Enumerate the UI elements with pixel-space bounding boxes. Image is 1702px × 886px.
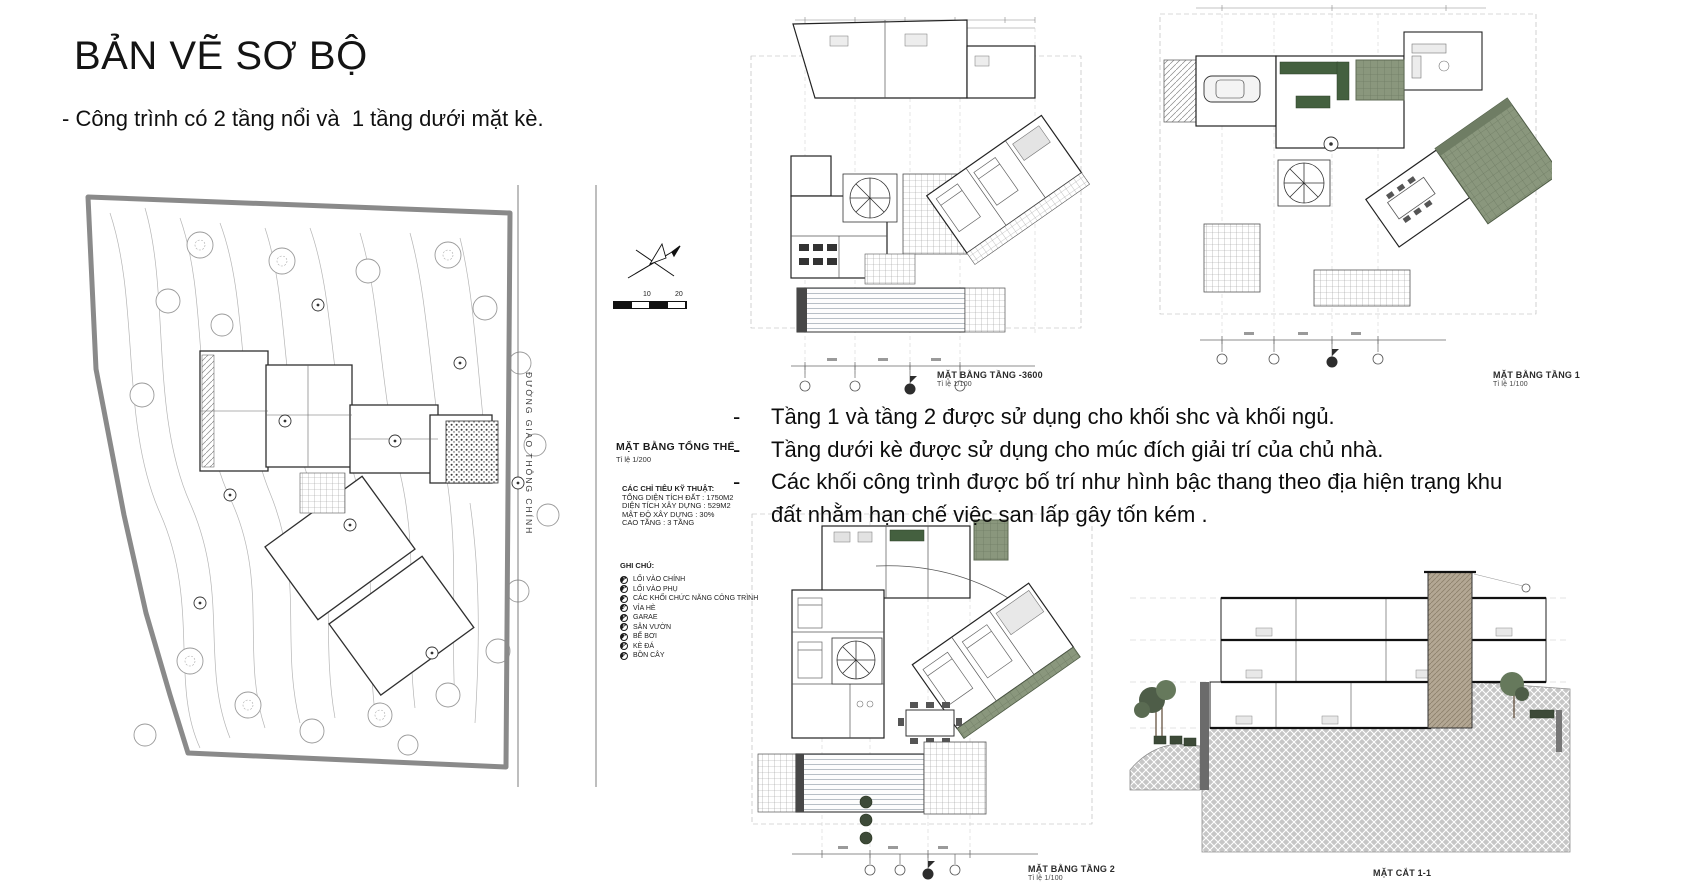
plan-title: MẶT BẰNG TẦNG 1: [1493, 370, 1580, 380]
note-item: - Tầng dưới kè được sử dụng cho múc đích…: [733, 434, 1533, 467]
floor2-plan-caption: MẶT BẰNG TẦNG 2 Tỉ lệ 1/100: [1028, 864, 1115, 884]
drawing-sheet: { "page": { "title": "BẢN VẼ SƠ BỘ", "su…: [0, 0, 1702, 886]
scale-bar: 10 20: [613, 291, 689, 313]
scale-bar-num-10: 10: [643, 291, 651, 298]
page-subtitle: - Công trình có 2 tầng nổi và 1 tầng dướ…: [62, 106, 544, 132]
floor1-plan-caption: MẶT BẰNG TẦNG 1 Tỉ lệ 1/100: [1493, 370, 1580, 390]
note-text: Tầng 1 và tầng 2 được sử dụng cho khối s…: [771, 401, 1533, 434]
page-title: BẢN VẼ SƠ BỘ: [74, 34, 368, 79]
marker-icon: 1: [620, 576, 628, 584]
marker-icon: 8: [620, 642, 628, 650]
legend-label: BỂ BƠI: [633, 633, 657, 640]
note-text: Các khối công trình được bố trí như hình…: [771, 466, 1533, 531]
marker-icon: 4: [620, 604, 628, 612]
site-plan-drawing: [50, 183, 602, 791]
north-arrow-icon: [622, 240, 686, 288]
site-plan-title: MẶT BẰNG TỔNG THỂ: [616, 441, 735, 453]
specs-heading: CÁC CHỈ TIÊU KỸ THUẬT:: [622, 485, 733, 493]
site-plan-scale: Tỉ lệ 1/200: [616, 455, 651, 464]
plan-title: MẶT BẰNG TẦNG 2: [1028, 864, 1115, 874]
basement-plan-drawing: [735, 6, 1107, 402]
note-bullet: -: [733, 466, 771, 531]
marker-icon: 5: [620, 614, 628, 622]
basement-plan-caption: MẶT BẰNG TẦNG -3600 Tỉ lệ 1/100: [937, 370, 1043, 390]
legend-label: SÂN VƯỜN: [633, 624, 671, 631]
note-bullet: -: [733, 401, 771, 434]
spec-item: CAO TẦNG : 3 TẦNG: [622, 519, 733, 527]
legend-label: KÈ ĐÁ: [633, 643, 654, 650]
floor2-plan-drawing: [738, 502, 1112, 884]
technical-specs: CÁC CHỈ TIÊU KỸ THUẬT: TỔNG DIỆN TÍCH ĐẤ…: [622, 485, 733, 527]
legend-label: GARAE: [633, 614, 658, 621]
notes-list: - Tầng 1 và tầng 2 được sử dụng cho khối…: [733, 401, 1533, 531]
legend-label: VỈA HÈ: [633, 605, 656, 612]
scale-bar-num-20: 20: [675, 291, 683, 298]
marker-icon: 6: [620, 623, 628, 631]
marker-icon: 2: [620, 585, 628, 593]
legend-label: LỐI VÀO CHÍNH: [633, 576, 685, 583]
note-text: Tầng dưới kè được sử dụng cho múc đích g…: [771, 434, 1533, 467]
note-bullet: -: [733, 434, 771, 467]
section-drawing: [1126, 558, 1572, 860]
marker-icon: 7: [620, 633, 628, 641]
marker-icon: 9: [620, 652, 628, 660]
plan-title: MẶT CẮT 1-1: [1373, 868, 1431, 878]
legend-label: LỐI VÀO PHỤ: [633, 586, 678, 593]
floor1-plan-drawing: [1146, 4, 1552, 370]
plan-scale: Tỉ lệ 1/100: [937, 380, 1043, 390]
plan-scale: Tỉ lệ 1/100: [1493, 380, 1580, 390]
scale-bar-segments: [613, 301, 687, 309]
plan-scale: Tỉ lệ 1/100: [1028, 874, 1115, 884]
road-label: ĐƯỜNG GIAO THÔNG CHÍNH: [524, 372, 534, 544]
note-item: - Các khối công trình được bố trí như hì…: [733, 466, 1533, 531]
legend-label: BỒN CÂY: [633, 652, 665, 659]
plan-title: MẶT BẰNG TẦNG -3600: [937, 370, 1043, 380]
note-item: - Tầng 1 và tầng 2 được sử dụng cho khối…: [733, 401, 1533, 434]
marker-icon: 3: [620, 595, 628, 603]
section-caption: MẶT CẮT 1-1: [1373, 868, 1431, 878]
